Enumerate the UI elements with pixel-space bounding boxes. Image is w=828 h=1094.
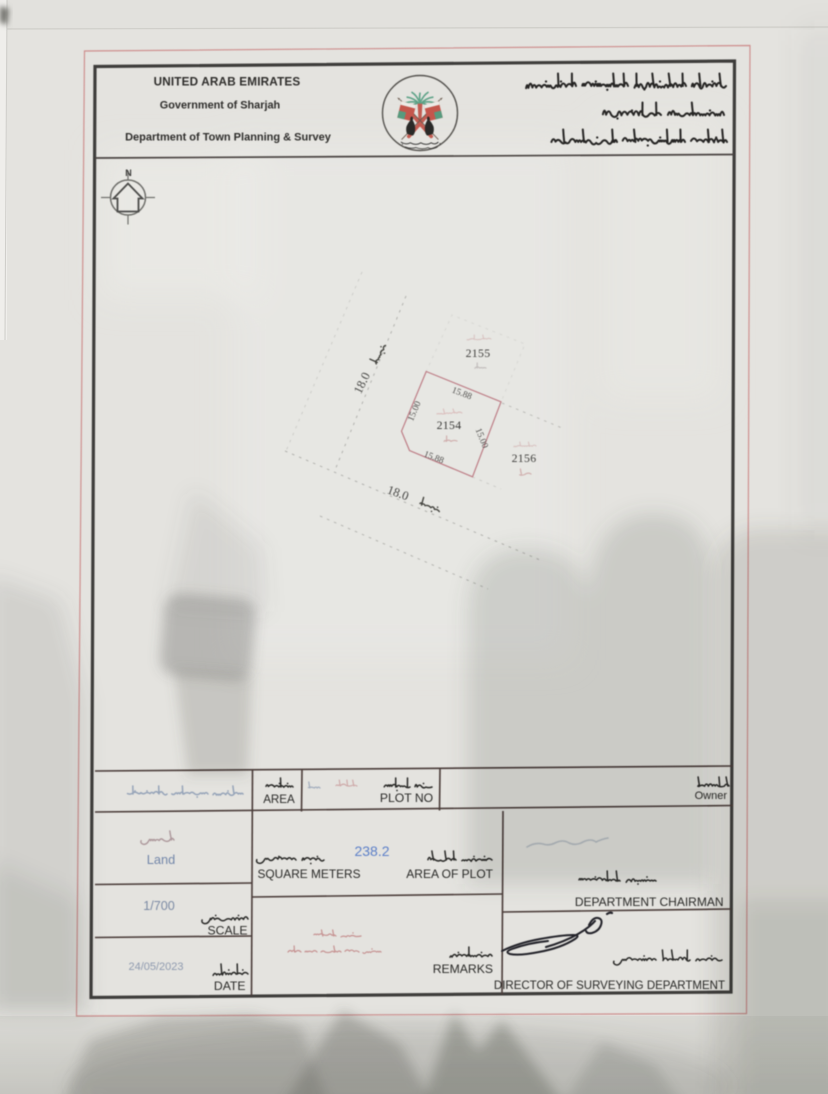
svg-text:2154: 2154 <box>437 418 462 432</box>
svg-text:DEPARTMENT CHAIRMAN: DEPARTMENT CHAIRMAN <box>575 895 724 909</box>
svg-text:AREA: AREA <box>263 793 295 806</box>
svg-text:N: N <box>125 168 132 178</box>
svg-text:DIRECTOR OF SURVEYING DEPARTME: DIRECTOR OF SURVEYING DEPARTMENT <box>494 980 725 992</box>
svg-text:PLOT NO: PLOT NO <box>380 791 433 805</box>
svg-text:Land: Land <box>147 852 175 867</box>
svg-text:2156: 2156 <box>512 451 537 465</box>
svg-text:2155: 2155 <box>466 346 491 360</box>
svg-text:Department of Town Planning &: Department of Town Planning & Survey <box>125 132 332 144</box>
svg-text:UNITED ARAB EMIRATES: UNITED ARAB EMIRATES <box>154 76 301 89</box>
svg-text:SCALE: SCALE <box>208 924 248 938</box>
svg-text:24/05/2023: 24/05/2023 <box>128 961 183 973</box>
svg-text:REMARKS: REMARKS <box>433 962 493 976</box>
svg-text:Government of Sharjah: Government of Sharjah <box>160 100 280 112</box>
svg-text:DATE: DATE <box>214 979 246 993</box>
svg-text:238.2: 238.2 <box>354 843 389 859</box>
svg-text:SQUARE METERS: SQUARE METERS <box>258 867 361 881</box>
svg-text:1/700: 1/700 <box>143 899 175 913</box>
